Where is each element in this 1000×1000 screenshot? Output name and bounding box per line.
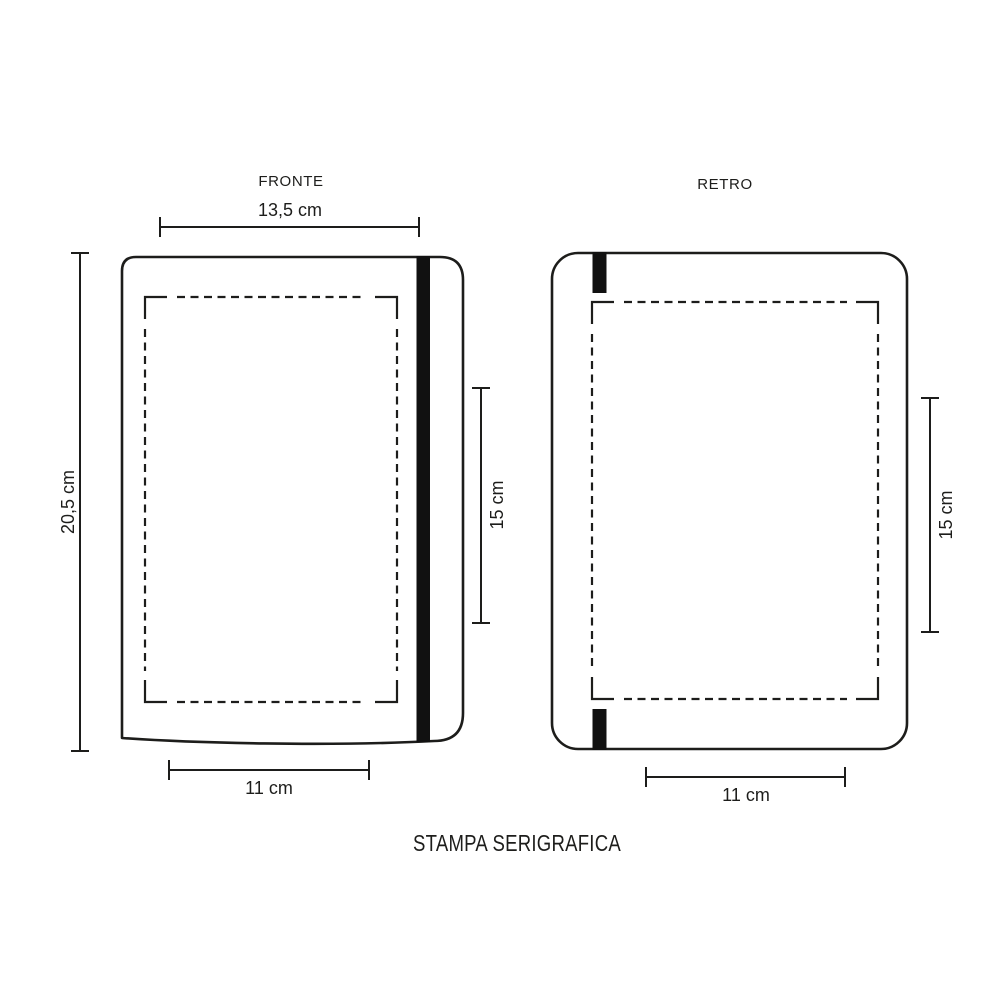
front-cover-width-dimension-label: 13,5 cm — [258, 200, 322, 220]
back-print-width-dimension-label: 11 cm — [722, 785, 770, 805]
front-print-height-dimension-label: 15 cm — [487, 480, 507, 529]
back-view: RETRO 15 cm — [552, 176, 956, 805]
front-cover-width-dimension-line — [160, 217, 419, 237]
notebook-print-spec-diagram: FRONTE 13,5 cm 20,5 cm — [0, 0, 1000, 1000]
back-print-width-dimension-line — [646, 767, 845, 787]
front-cover-height-dimension: 20,5 cm — [58, 253, 89, 751]
front-cover-width-dimension: 13,5 cm — [160, 200, 419, 237]
front-elastic-band — [417, 256, 431, 742]
front-print-height-dimension: 15 cm — [472, 388, 507, 623]
back-view-label: RETRO — [697, 176, 753, 193]
front-notebook-outline — [122, 257, 463, 744]
back-elastic-band-top — [593, 252, 607, 293]
front-cover-height-dimension-label: 20,5 cm — [58, 470, 78, 534]
front-view: FRONTE 13,5 cm 20,5 cm — [58, 173, 507, 798]
back-notebook-outline — [552, 253, 907, 749]
back-print-height-dimension-label: 15 cm — [936, 490, 956, 539]
front-print-width-dimension-label: 11 cm — [245, 778, 293, 798]
front-view-label: FRONTE — [258, 173, 323, 190]
front-print-width-dimension-line — [169, 760, 369, 780]
back-print-height-dimension: 15 cm — [921, 398, 956, 632]
page-title: STAMPA SERIGRAFICA — [413, 830, 621, 856]
diagram-canvas: FRONTE 13,5 cm 20,5 cm — [0, 0, 1000, 1000]
front-print-width-dimension: 11 cm — [169, 760, 369, 798]
back-elastic-band-bottom — [593, 709, 607, 750]
back-print-width-dimension: 11 cm — [646, 767, 845, 805]
